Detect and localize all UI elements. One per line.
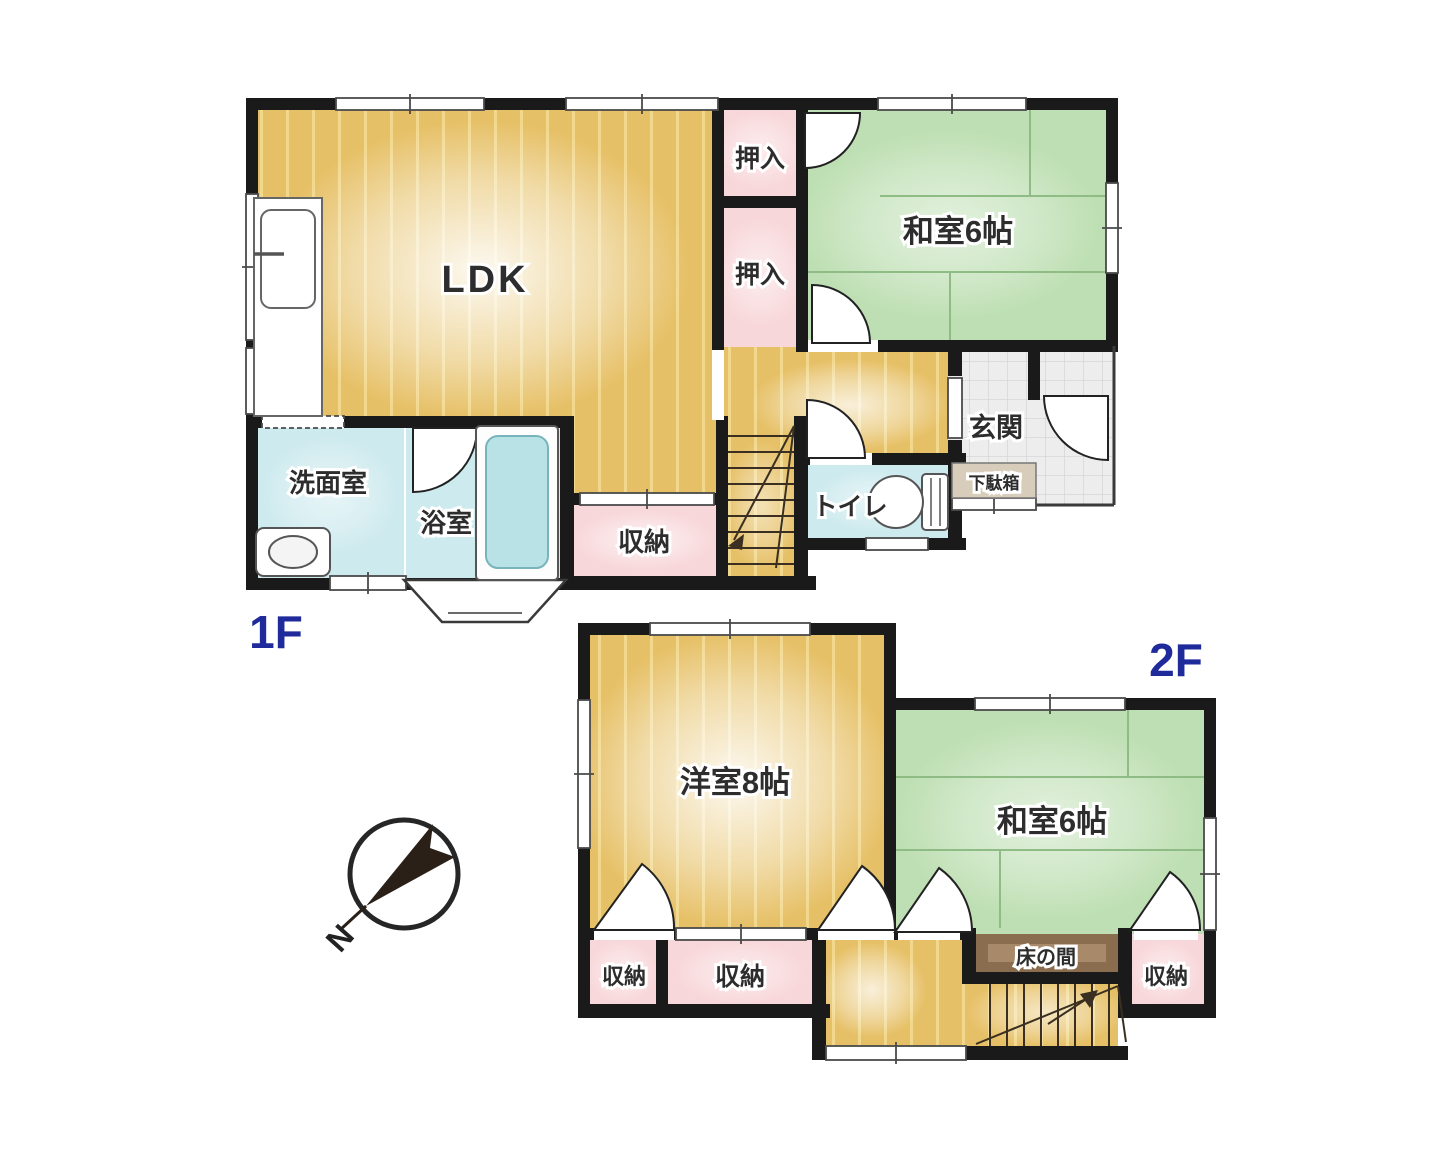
room-label-getabako: 下駄箱 — [969, 473, 1020, 493]
compass-icon: N — [319, 820, 458, 959]
washbasin-icon — [256, 528, 330, 576]
bay-window — [404, 580, 566, 622]
room-label-storage-2f-left: 収納 — [602, 964, 646, 989]
room-label-ldk: LDK — [441, 259, 528, 301]
room-label-oshiire-upper: 押入 — [735, 145, 785, 173]
compass-north-label: N — [319, 917, 361, 958]
floor-label-1f: 1F — [249, 606, 303, 658]
bathtub-icon — [476, 426, 558, 580]
room-label-bathroom: 浴室 — [420, 508, 472, 538]
floor-plan-page: LDK 押入 押入 和室6帖 玄関 下駄箱 トイレ 収納 浴室 洗面室 1F — [0, 0, 1440, 1164]
floor-label-2f: 2F — [1149, 634, 1203, 686]
room-label-storage-1f: 収納 — [618, 527, 670, 557]
room-label-yoshitsu: 洋室8帖 — [680, 765, 790, 800]
floor-1f: LDK 押入 押入 和室6帖 玄関 下駄箱 トイレ 収納 浴室 洗面室 1F — [242, 94, 1122, 658]
room-label-tokonoma: 床の間 — [1016, 945, 1076, 969]
room-label-washitsu-1f: 和室6帖 — [903, 214, 1013, 249]
floor-plan-drawing: LDK 押入 押入 和室6帖 玄関 下駄箱 トイレ 収納 浴室 洗面室 1F — [0, 0, 1440, 1164]
room-label-storage-2f-right: 収納 — [1144, 964, 1188, 989]
room-label-storage-2f-mid: 収納 — [715, 962, 765, 991]
kitchen-counter-icon — [254, 198, 322, 416]
room-label-washitsu-2f: 和室6帖 — [997, 804, 1107, 839]
room-label-oshiire-lower: 押入 — [735, 261, 785, 289]
room-label-toilet: トイレ — [812, 493, 887, 521]
room-label-washroom: 洗面室 — [289, 468, 367, 498]
floor-2f: 洋室8帖 和室6帖 床の間 収納 収納 収納 2F — [574, 619, 1220, 1064]
room-label-genkan: 玄関 — [969, 412, 1023, 443]
kitchen-sink-icon — [261, 210, 315, 308]
